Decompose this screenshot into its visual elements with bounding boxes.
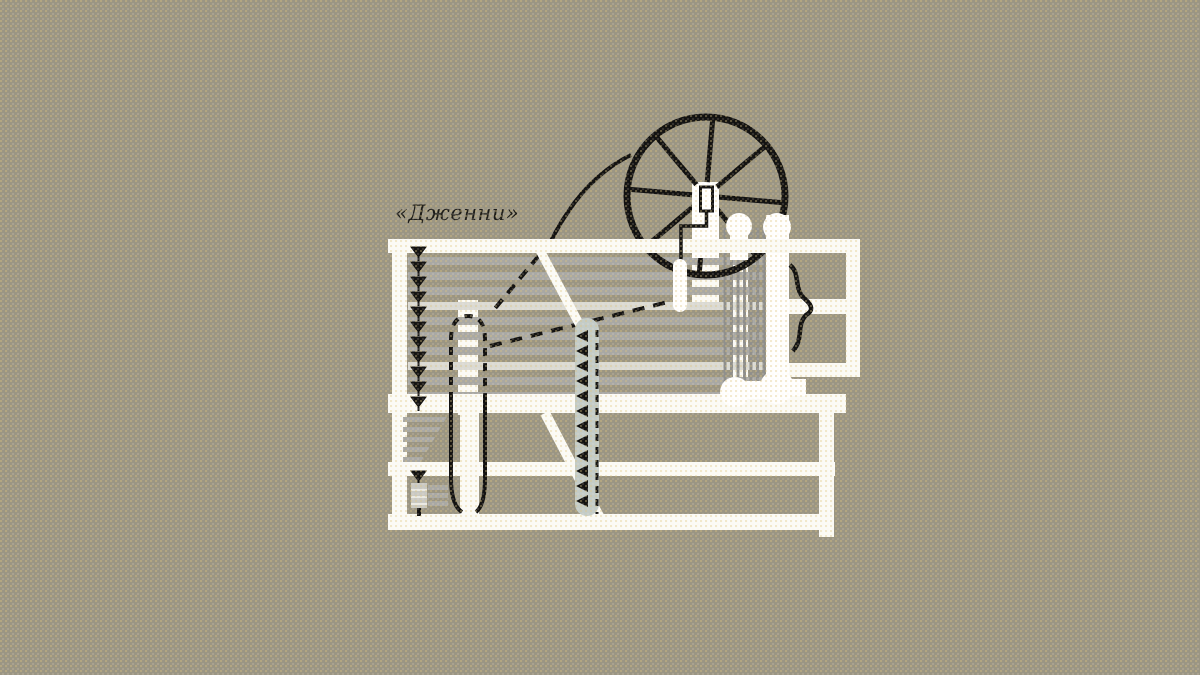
illustration-canvas: «Дженни» [0, 0, 1200, 675]
spindle [673, 259, 687, 312]
spindle-post [460, 413, 479, 517]
bottom-rail [388, 514, 830, 530]
crank-handle [701, 187, 713, 211]
small-bobbin [411, 483, 448, 516]
right-leg [819, 404, 834, 537]
top-rail [388, 239, 860, 253]
ladder-stile [846, 239, 860, 377]
ladder-rung-upper [789, 299, 847, 314]
spinning-jenny-illustration [0, 0, 1200, 675]
bobbin-threads [428, 485, 448, 506]
mid-rail [388, 462, 835, 476]
carriage-wheel-small [720, 377, 750, 407]
under-table-threads [403, 417, 448, 462]
left-leg [392, 239, 407, 530]
machine-label: «Дженни» [395, 201, 519, 225]
thread-cop [575, 318, 599, 516]
ladder-rung-lower [789, 363, 847, 377]
carriage-wheel-large [760, 370, 794, 404]
